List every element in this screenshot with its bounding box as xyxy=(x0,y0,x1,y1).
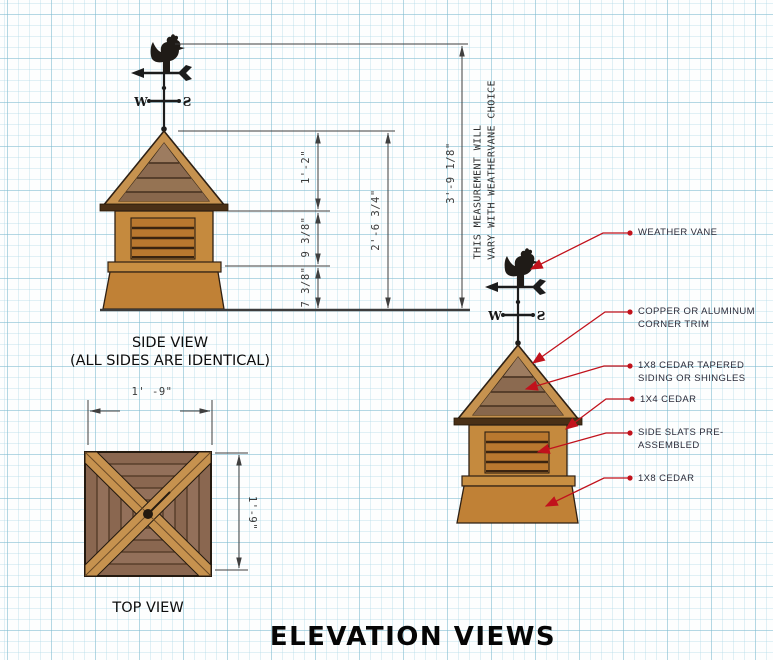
top-view-dim-depth: 1'-9" xyxy=(246,496,258,530)
callout-line: ASSEMBLED xyxy=(638,440,724,453)
callout-side-slats: SIDE SLATS PRE- ASSEMBLED xyxy=(638,427,724,452)
vane-note-line1: THIS MEASUREMENT WILL xyxy=(473,125,484,260)
side-view-caption-note: (ALL SIDES ARE IDENTICAL) xyxy=(70,353,270,369)
top-view-drawing xyxy=(85,452,211,576)
dim-total-height: 3'-9 1/8" xyxy=(445,142,457,203)
callout-line: 1X8 CEDAR TAPERED xyxy=(638,360,746,373)
callout-line: WEATHER VANE xyxy=(638,227,717,240)
callout-line: SIDING OR SHINGLES xyxy=(638,373,746,386)
blueprint-canvas: W S xyxy=(0,0,773,660)
side-view-cupola xyxy=(100,34,228,309)
vane-note-line2: VARY WITH WEATHERVANE CHOICE xyxy=(487,80,498,260)
callout-line: CORNER TRIM xyxy=(638,319,755,332)
side-view-caption: SIDE VIEW xyxy=(132,335,208,351)
top-view-caption: TOP VIEW xyxy=(112,600,183,616)
callout-line: 1X4 CEDAR xyxy=(640,394,696,407)
callout-1x4-cedar: 1X4 CEDAR xyxy=(640,394,696,407)
callout-line: SIDE SLATS PRE- xyxy=(638,427,724,440)
callout-1x8-cedar: 1X8 CEDAR xyxy=(638,473,694,486)
callout-dots xyxy=(627,230,634,480)
callout-line: 1X8 CEDAR xyxy=(638,473,694,486)
callout-corner-trim: COPPER OR ALUMINUM CORNER TRIM xyxy=(638,306,755,331)
dim-louver-height: 9 3/8" xyxy=(300,217,312,258)
dim-base-height: 7 3/8" xyxy=(300,267,312,308)
page-title: ELEVATION VIEWS xyxy=(270,622,556,652)
callout-siding: 1X8 CEDAR TAPERED SIDING OR SHINGLES xyxy=(638,360,746,385)
top-view-dim-width: 1' -9" xyxy=(132,386,173,398)
annotated-cupola xyxy=(454,248,582,523)
callout-weather-vane: WEATHER VANE xyxy=(638,227,717,240)
dim-cupola-height: 2'-6 3/4" xyxy=(370,189,382,250)
callout-line: COPPER OR ALUMINUM xyxy=(638,306,755,319)
dim-roof-height: 1'-2" xyxy=(300,150,312,184)
